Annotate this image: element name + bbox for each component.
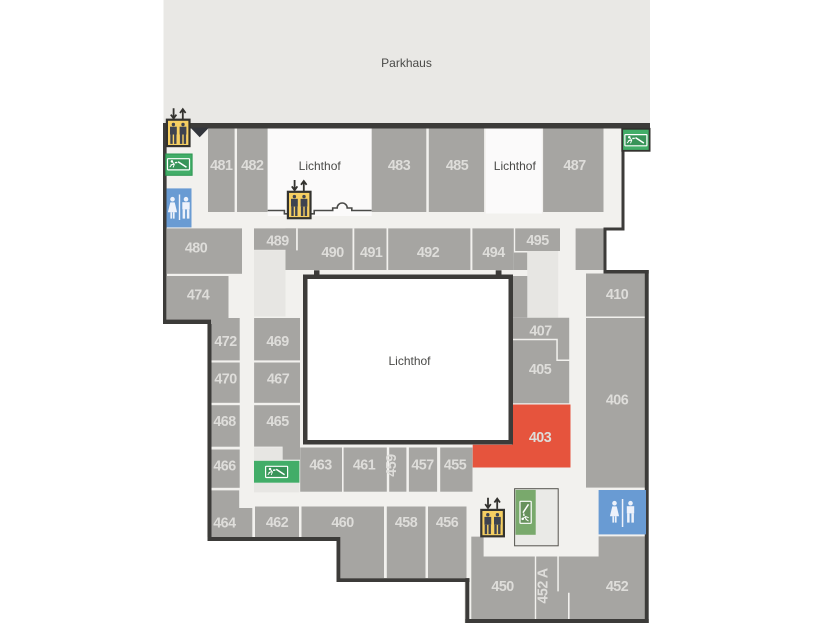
svg-text:495: 495 [526, 233, 549, 249]
svg-text:410: 410 [606, 287, 629, 303]
svg-text:406: 406 [606, 393, 629, 409]
svg-text:457: 457 [411, 458, 434, 474]
svg-text:458: 458 [395, 515, 418, 531]
svg-text:407: 407 [529, 324, 552, 340]
svg-text:452: 452 [606, 579, 629, 595]
svg-text:463: 463 [309, 458, 332, 474]
svg-text:483: 483 [388, 158, 411, 174]
svg-text:491: 491 [360, 245, 383, 261]
svg-text:490: 490 [321, 245, 344, 261]
svg-text:450: 450 [491, 579, 514, 595]
svg-text:489: 489 [266, 234, 289, 250]
svg-text:466: 466 [213, 459, 236, 475]
svg-text:460: 460 [331, 515, 354, 531]
svg-text:487: 487 [563, 158, 586, 174]
svg-text:461: 461 [353, 458, 376, 474]
svg-text:459: 459 [384, 454, 400, 477]
svg-text:456: 456 [436, 515, 459, 531]
svg-text:462: 462 [266, 515, 289, 531]
svg-text:Lichthof: Lichthof [299, 159, 342, 173]
svg-text:464: 464 [213, 516, 236, 532]
svg-text:455: 455 [444, 458, 467, 474]
svg-text:494: 494 [482, 245, 505, 261]
svg-text:469: 469 [266, 334, 289, 350]
svg-text:Parkhaus: Parkhaus [381, 56, 432, 70]
svg-text:482: 482 [241, 158, 264, 174]
svg-text:467: 467 [267, 372, 290, 388]
svg-text:472: 472 [214, 334, 237, 350]
svg-text:468: 468 [213, 414, 236, 430]
svg-text:485: 485 [446, 158, 469, 174]
svg-text:452 A: 452 A [536, 568, 552, 603]
svg-text:403: 403 [529, 430, 552, 446]
svg-text:Lichthof: Lichthof [494, 159, 537, 173]
svg-text:481: 481 [210, 158, 233, 174]
svg-text:470: 470 [214, 372, 237, 388]
svg-text:Lichthof: Lichthof [388, 354, 431, 368]
svg-text:405: 405 [529, 362, 552, 378]
svg-text:492: 492 [417, 245, 440, 261]
svg-text:474: 474 [187, 288, 210, 304]
svg-text:465: 465 [266, 414, 289, 430]
svg-text:480: 480 [185, 241, 208, 257]
